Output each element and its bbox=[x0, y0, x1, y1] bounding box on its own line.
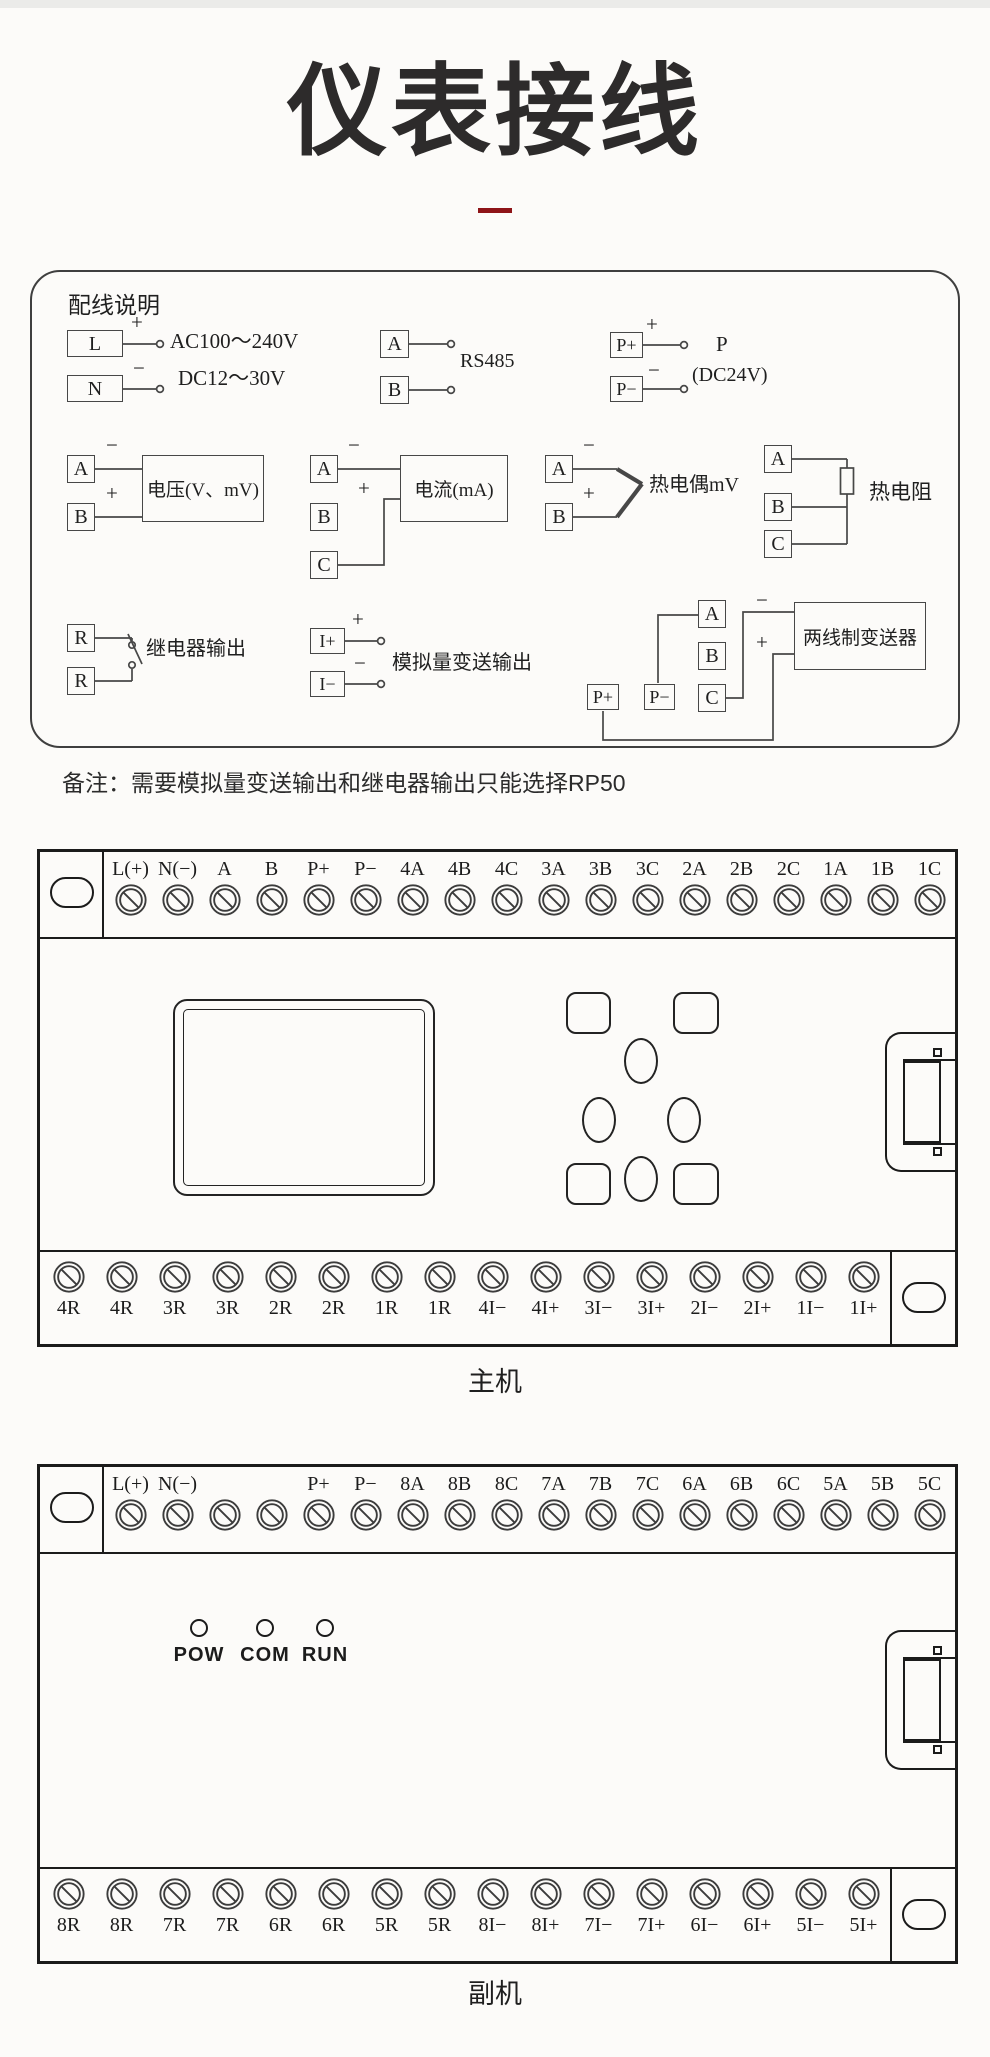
terminal-label: 7I+ bbox=[638, 1913, 666, 1937]
terminal: N(−) bbox=[154, 1472, 201, 1552]
terminal: 2A bbox=[671, 857, 718, 937]
terminal-label: 7I− bbox=[585, 1913, 613, 1937]
terminal-label: 2I+ bbox=[744, 1296, 772, 1320]
terminal-screw-icon bbox=[370, 1877, 404, 1911]
connector-slot bbox=[903, 1659, 941, 1741]
terminal: 6C bbox=[765, 1472, 812, 1552]
tx-plus-sign: + bbox=[756, 630, 768, 655]
terminal-screw-icon bbox=[913, 1498, 947, 1532]
terminal-screw-icon bbox=[211, 1877, 245, 1911]
connector-tab bbox=[933, 1147, 942, 1156]
terminal-label: 3C bbox=[636, 857, 659, 881]
terminal-screw-icon bbox=[741, 1260, 775, 1294]
terminal: B bbox=[248, 857, 295, 937]
terminal-box-tx-P-minus: P− bbox=[644, 684, 675, 710]
terminal-box-rtd-C: C bbox=[764, 530, 792, 558]
terminal-label: 6C bbox=[777, 1472, 800, 1496]
terminal-label: 7B bbox=[589, 1472, 612, 1496]
terminal-screw-icon bbox=[255, 883, 289, 917]
terminal-label: 5R bbox=[428, 1913, 451, 1937]
terminal-label: 8C bbox=[495, 1472, 518, 1496]
terminal: 2C bbox=[765, 857, 812, 937]
mount-hole bbox=[902, 1899, 946, 1930]
terminal-label: 5R bbox=[375, 1913, 398, 1937]
terminal: P+ bbox=[295, 1472, 342, 1552]
current-input-box: 电流(mA) bbox=[400, 455, 508, 522]
terminal-label: B bbox=[265, 857, 278, 881]
led-indicator-icon bbox=[256, 1619, 274, 1637]
terminal: N(−) bbox=[154, 857, 201, 937]
wiring-description-box: 配线说明 L N + − AC100～240V DC12～30V A B RS4… bbox=[30, 270, 960, 748]
terminal: 7I+ bbox=[625, 1877, 678, 1937]
terminal-label: 4R bbox=[57, 1296, 80, 1320]
keypad-up-button[interactable] bbox=[624, 1038, 658, 1084]
two-wire-transmitter-box: 两线制变送器 bbox=[794, 602, 926, 670]
terminal-screw-icon bbox=[741, 1877, 775, 1911]
terminal: 4I− bbox=[466, 1260, 519, 1320]
voltage-minus-sign: − bbox=[106, 433, 118, 458]
mount-hole bbox=[50, 1492, 94, 1523]
terminal-box-voltage-B: B bbox=[67, 503, 95, 531]
aout-plus-sign: + bbox=[352, 607, 364, 632]
terminal: 5A bbox=[812, 1472, 859, 1552]
terminal: 5R bbox=[360, 1877, 413, 1937]
relay-output-label: 继电器输出 bbox=[146, 632, 246, 661]
led-indicator-icon bbox=[316, 1619, 334, 1637]
terminal: 7C bbox=[624, 1472, 671, 1552]
terminal-screw-icon bbox=[396, 883, 430, 917]
terminal: 4I+ bbox=[519, 1260, 572, 1320]
terminal: 3I+ bbox=[625, 1260, 678, 1320]
terminal-box-tx-B: B bbox=[698, 642, 726, 670]
terminal-box-I-minus: I− bbox=[310, 671, 345, 697]
terminal-screw-icon bbox=[317, 1877, 351, 1911]
keypad-button-top-left[interactable] bbox=[566, 992, 611, 1034]
terminal-screw-icon bbox=[423, 1260, 457, 1294]
led-label: RUN bbox=[302, 1644, 348, 1667]
led-label: POW bbox=[174, 1644, 225, 1667]
terminal-label: 8I+ bbox=[532, 1913, 560, 1937]
terminal-label: 4I− bbox=[479, 1296, 507, 1320]
keypad-button-top-right[interactable] bbox=[673, 992, 719, 1034]
main-bottom-terminal-strip: 4R 4R 3R bbox=[40, 1250, 955, 1344]
terminal-screw-icon bbox=[537, 883, 571, 917]
main-top-terminals: L(+) N(−) A bbox=[107, 857, 953, 937]
terminal-box-rs485-A: A bbox=[380, 330, 409, 358]
terminal: 5I+ bbox=[837, 1877, 890, 1937]
terminal: 1I+ bbox=[837, 1260, 890, 1320]
terminal-label: 8B bbox=[448, 1472, 471, 1496]
power-voltage-ac: AC100～240V bbox=[170, 325, 298, 355]
terminal: 7I− bbox=[572, 1877, 625, 1937]
terminal-screw-icon bbox=[529, 1877, 563, 1911]
terminal: A bbox=[201, 857, 248, 937]
terminal-label: 1A bbox=[823, 857, 847, 881]
terminal: 2R bbox=[254, 1260, 307, 1320]
side-connector bbox=[885, 1032, 955, 1172]
main-unit-caption: 主机 bbox=[0, 1360, 990, 1399]
terminal: 8R bbox=[42, 1877, 95, 1937]
terminal: 7R bbox=[201, 1877, 254, 1937]
terminal-screw-icon bbox=[725, 883, 759, 917]
connector-line bbox=[903, 1143, 955, 1145]
terminal-label: 7R bbox=[216, 1913, 239, 1937]
terminal: 1A bbox=[812, 857, 859, 937]
terminal-label: 3I+ bbox=[638, 1296, 666, 1320]
terminal-screw-icon bbox=[847, 1877, 881, 1911]
terminal-box-voltage-A: A bbox=[67, 455, 95, 483]
mount-hole-cell bbox=[40, 852, 104, 937]
terminal-label: 7R bbox=[163, 1913, 186, 1937]
terminal: 2R bbox=[307, 1260, 360, 1320]
terminal-label: 2R bbox=[269, 1296, 292, 1320]
terminal-label: 3I− bbox=[585, 1296, 613, 1320]
terminal-screw-icon bbox=[490, 1498, 524, 1532]
terminal: 6B bbox=[718, 1472, 765, 1552]
tc-minus-sign: − bbox=[583, 433, 595, 458]
mount-hole bbox=[902, 1282, 946, 1313]
mount-hole-cell bbox=[890, 1252, 955, 1344]
terminal bbox=[201, 1472, 248, 1552]
terminal-box-tc-B: B bbox=[545, 503, 573, 531]
terminal-screw-icon bbox=[635, 1260, 669, 1294]
terminal-label: 4A bbox=[400, 857, 424, 881]
aux-bottom-terminals: 8R 8R 7R bbox=[42, 1877, 890, 1937]
terminal-label: 3R bbox=[216, 1296, 239, 1320]
aux-unit-diagram: L(+) N(−) bbox=[37, 1464, 958, 1964]
pout-plus-sign: + bbox=[646, 312, 658, 337]
terminal-screw-icon bbox=[688, 1877, 722, 1911]
mount-hole bbox=[50, 877, 94, 908]
terminal-screw-icon bbox=[443, 883, 477, 917]
terminal-screw-icon bbox=[794, 1877, 828, 1911]
terminal-box-tx-P-plus: P+ bbox=[587, 684, 619, 710]
terminal-screw-icon bbox=[211, 1260, 245, 1294]
terminal-screw-icon bbox=[631, 1498, 665, 1532]
terminal: 8I+ bbox=[519, 1877, 572, 1937]
terminal: 3C bbox=[624, 857, 671, 937]
terminal-label: 7A bbox=[541, 1472, 565, 1496]
connector-tab bbox=[933, 1048, 942, 1057]
terminal-screw-icon bbox=[866, 883, 900, 917]
connector-line bbox=[903, 1741, 955, 1743]
current-minus-sign: − bbox=[348, 433, 360, 458]
terminal-screw-icon bbox=[847, 1260, 881, 1294]
terminal-screw-icon bbox=[370, 1260, 404, 1294]
terminal-label: 6B bbox=[730, 1472, 753, 1496]
status-led: RUN bbox=[293, 1619, 357, 1667]
terminal-label: L(+) bbox=[112, 1472, 149, 1496]
keypad-left-button[interactable] bbox=[582, 1097, 616, 1143]
terminal-label: 5I− bbox=[797, 1913, 825, 1937]
terminal: P− bbox=[342, 857, 389, 937]
voltage-input-box: 电压(V、mV) bbox=[142, 455, 264, 522]
terminal-label: 2R bbox=[322, 1296, 345, 1320]
terminal: 4C bbox=[483, 857, 530, 937]
terminal: 8I− bbox=[466, 1877, 519, 1937]
terminal-screw-icon bbox=[52, 1260, 86, 1294]
terminal-label: 5C bbox=[918, 1472, 941, 1496]
terminal-screw-icon bbox=[349, 883, 383, 917]
terminal-screw-icon bbox=[584, 1498, 618, 1532]
terminal-label: 5B bbox=[871, 1472, 894, 1496]
terminal: 6R bbox=[307, 1877, 360, 1937]
terminal-label: 1I+ bbox=[850, 1296, 878, 1320]
terminal-screw-icon bbox=[264, 1877, 298, 1911]
terminal-box-relay-R2: R bbox=[67, 667, 95, 695]
terminal: L(+) bbox=[107, 1472, 154, 1552]
terminal-box-rs485-B: B bbox=[380, 376, 409, 404]
terminal-label: 1B bbox=[871, 857, 894, 881]
terminal-box-P-minus: P− bbox=[610, 376, 643, 402]
aux-unit-caption: 副机 bbox=[0, 1972, 990, 2011]
terminal-screw-icon bbox=[772, 883, 806, 917]
keypad-right-button[interactable] bbox=[667, 1097, 701, 1143]
terminal-screw-icon bbox=[819, 1498, 853, 1532]
title-accent-dash bbox=[478, 208, 512, 213]
side-connector bbox=[885, 1630, 955, 1770]
terminal-screw-icon bbox=[819, 883, 853, 917]
terminal: 8C bbox=[483, 1472, 530, 1552]
terminal-screw-icon bbox=[584, 883, 618, 917]
terminal-screw-icon bbox=[635, 1877, 669, 1911]
terminal-label: 1C bbox=[918, 857, 941, 881]
keypad-button-bottom-right[interactable] bbox=[673, 1163, 719, 1205]
status-led: COM bbox=[233, 1619, 297, 1667]
terminal-label: P+ bbox=[307, 1472, 329, 1496]
terminal-screw-icon bbox=[158, 1877, 192, 1911]
terminal: 2I− bbox=[678, 1260, 731, 1320]
terminal: 5C bbox=[906, 1472, 953, 1552]
terminal: 8R bbox=[95, 1877, 148, 1937]
connector-tab bbox=[933, 1745, 942, 1754]
page-title: 仪表接线 bbox=[0, 30, 990, 175]
terminal-label: 2I− bbox=[691, 1296, 719, 1320]
terminal-screw-icon bbox=[490, 883, 524, 917]
main-unit-diagram: L(+) N(−) A bbox=[37, 849, 958, 1347]
tc-plus-sign: + bbox=[583, 481, 595, 506]
thermocouple-label: 热电偶mV bbox=[649, 468, 739, 497]
terminal-screw-icon bbox=[161, 1498, 195, 1532]
terminal: 6I− bbox=[678, 1877, 731, 1937]
terminal-label: P− bbox=[354, 857, 376, 881]
terminal-label: 8A bbox=[400, 1472, 424, 1496]
main-bottom-terminals: 4R 4R 3R bbox=[42, 1260, 890, 1320]
terminal-screw-icon bbox=[317, 1260, 351, 1294]
terminal: 4R bbox=[42, 1260, 95, 1320]
terminal-screw-icon bbox=[688, 1260, 722, 1294]
terminal-label: 7C bbox=[636, 1472, 659, 1496]
terminal-screw-icon bbox=[678, 883, 712, 917]
display-bezel bbox=[173, 999, 435, 1196]
display-screen bbox=[183, 1009, 425, 1186]
terminal-label: P− bbox=[354, 1472, 376, 1496]
terminal-label: 2A bbox=[682, 857, 706, 881]
terminal-label: A bbox=[217, 857, 231, 881]
terminal: 7B bbox=[577, 1472, 624, 1552]
status-led: POW bbox=[167, 1619, 231, 1667]
terminal-screw-icon bbox=[349, 1498, 383, 1532]
terminal-box-rtd-B: B bbox=[764, 493, 792, 521]
page: { "page": { "title": "仪表接线" }, "colors":… bbox=[0, 0, 990, 2057]
terminal-label: 8R bbox=[110, 1913, 133, 1937]
wiring-box-title: 配线说明 bbox=[68, 286, 160, 320]
terminal: 4R bbox=[95, 1260, 148, 1320]
terminal-screw-icon bbox=[114, 1498, 148, 1532]
terminal: 5B bbox=[859, 1472, 906, 1552]
terminal: 2I+ bbox=[731, 1260, 784, 1320]
terminal: 6R bbox=[254, 1877, 307, 1937]
main-unit-body bbox=[40, 939, 955, 1250]
aux-unit-body: POW COM RUN bbox=[40, 1554, 955, 1867]
terminal-box-relay-R1: R bbox=[67, 624, 95, 652]
aux-bottom-terminal-strip: 8R 8R 7R bbox=[40, 1867, 955, 1961]
terminal-box-rtd-A: A bbox=[764, 445, 792, 473]
terminal: 1R bbox=[413, 1260, 466, 1320]
terminal-label: 5A bbox=[823, 1472, 847, 1496]
terminal-box-N: N bbox=[67, 375, 123, 402]
terminal: 3R bbox=[148, 1260, 201, 1320]
connector-tab bbox=[933, 1646, 942, 1655]
terminal: L(+) bbox=[107, 857, 154, 937]
terminal-label: P+ bbox=[307, 857, 329, 881]
terminal-screw-icon bbox=[529, 1260, 563, 1294]
terminal-label: 4I+ bbox=[532, 1296, 560, 1320]
terminal: 3R bbox=[201, 1260, 254, 1320]
terminal-box-current-B: B bbox=[310, 503, 338, 531]
terminal-screw-icon bbox=[678, 1498, 712, 1532]
terminal: 1B bbox=[859, 857, 906, 937]
aux-top-terminals: L(+) N(−) bbox=[107, 1472, 953, 1552]
terminal-label: L(+) bbox=[112, 857, 149, 881]
terminal-box-tx-A: A bbox=[698, 600, 726, 628]
analog-output-label: 模拟量变送输出 bbox=[392, 646, 532, 675]
terminal-screw-icon bbox=[208, 1498, 242, 1532]
terminal-label: 6A bbox=[682, 1472, 706, 1496]
terminal: 7R bbox=[148, 1877, 201, 1937]
terminal-label: 6I− bbox=[691, 1913, 719, 1937]
terminal: 1C bbox=[906, 857, 953, 937]
tx-minus-sign: − bbox=[756, 588, 768, 613]
terminal: 7A bbox=[530, 1472, 577, 1552]
main-top-terminal-strip: L(+) N(−) A bbox=[40, 852, 955, 939]
keypad-down-button[interactable] bbox=[624, 1156, 658, 1202]
terminal: 1I− bbox=[784, 1260, 837, 1320]
terminal-screw-icon bbox=[208, 883, 242, 917]
terminal-screw-icon bbox=[302, 883, 336, 917]
pout-minus-sign: − bbox=[648, 358, 660, 383]
rs485-label: RS485 bbox=[460, 350, 514, 373]
terminal-screw-icon bbox=[772, 1498, 806, 1532]
terminal-screw-icon bbox=[537, 1498, 571, 1532]
terminal: P− bbox=[342, 1472, 389, 1552]
terminal-label: N(−) bbox=[158, 1472, 197, 1496]
terminal-box-I-plus: I+ bbox=[310, 628, 345, 654]
terminal-label: 2C bbox=[777, 857, 800, 881]
terminal: 6I+ bbox=[731, 1877, 784, 1937]
terminal-screw-icon bbox=[52, 1877, 86, 1911]
terminal-screw-icon bbox=[443, 1498, 477, 1532]
aux-top-terminal-strip: L(+) N(−) bbox=[40, 1467, 955, 1554]
note-text: 备注：需要模拟量变送输出和继电器输出只能选择RP50 bbox=[62, 764, 626, 798]
terminal-label: 3B bbox=[589, 857, 612, 881]
terminal-screw-icon bbox=[264, 1260, 298, 1294]
terminal-label: 6R bbox=[322, 1913, 345, 1937]
terminal-screw-icon bbox=[725, 1498, 759, 1532]
terminal-screw-icon bbox=[423, 1877, 457, 1911]
terminal-screw-icon bbox=[866, 1498, 900, 1532]
terminal-label: 1R bbox=[375, 1296, 398, 1320]
terminal-box-L: L bbox=[67, 330, 123, 357]
led-indicator-icon bbox=[190, 1619, 208, 1637]
voltage-plus-sign: + bbox=[106, 481, 118, 506]
terminal-box-current-A: A bbox=[310, 455, 338, 483]
terminal: 8A bbox=[389, 1472, 436, 1552]
terminal-label: 2B bbox=[730, 857, 753, 881]
terminal-label: 4C bbox=[495, 857, 518, 881]
terminal-label: 4R bbox=[110, 1296, 133, 1320]
terminal-screw-icon bbox=[302, 1498, 336, 1532]
connector-slot bbox=[903, 1061, 941, 1143]
terminal-screw-icon bbox=[476, 1260, 510, 1294]
terminal-label: 5I+ bbox=[850, 1913, 878, 1937]
power-minus-sign: − bbox=[133, 356, 145, 381]
terminal: 4B bbox=[436, 857, 483, 937]
terminal-screw-icon bbox=[158, 1260, 192, 1294]
terminal-label: N(−) bbox=[158, 857, 197, 881]
terminal-screw-icon bbox=[794, 1260, 828, 1294]
terminal-label: 8R bbox=[57, 1913, 80, 1937]
terminal-screw-icon bbox=[396, 1498, 430, 1532]
terminal-screw-icon bbox=[582, 1877, 616, 1911]
terminal-label: 3R bbox=[163, 1296, 186, 1320]
current-plus-sign: + bbox=[358, 476, 370, 501]
top-gray-bar bbox=[0, 0, 990, 8]
mount-hole-cell bbox=[890, 1869, 955, 1961]
terminal-screw-icon bbox=[105, 1260, 139, 1294]
terminal-screw-icon bbox=[582, 1260, 616, 1294]
terminal-box-tc-A: A bbox=[545, 455, 573, 483]
power-plus-sign: + bbox=[131, 310, 143, 335]
terminal-box-current-C: C bbox=[310, 551, 338, 579]
led-label: COM bbox=[240, 1644, 290, 1667]
rtd-label: 热电阻 bbox=[869, 476, 932, 506]
aout-minus-sign: − bbox=[354, 651, 366, 676]
terminal-label: 1I− bbox=[797, 1296, 825, 1320]
terminal: 1R bbox=[360, 1260, 413, 1320]
terminal-screw-icon bbox=[161, 883, 195, 917]
terminal: P+ bbox=[295, 857, 342, 937]
terminal: 3B bbox=[577, 857, 624, 937]
pout-name-label: P bbox=[716, 332, 728, 357]
terminal: 5I− bbox=[784, 1877, 837, 1937]
terminal-screw-icon bbox=[631, 883, 665, 917]
terminal-label: 4B bbox=[448, 857, 471, 881]
terminal-box-tx-C: C bbox=[698, 684, 726, 712]
terminal: 4A bbox=[389, 857, 436, 937]
terminal: 3I− bbox=[572, 1260, 625, 1320]
terminal-label: 1R bbox=[428, 1296, 451, 1320]
power-voltage-dc: DC12～30V bbox=[178, 362, 285, 392]
terminal: 8B bbox=[436, 1472, 483, 1552]
terminal-screw-icon bbox=[105, 1877, 139, 1911]
terminal-screw-icon bbox=[255, 1498, 289, 1532]
keypad-button-bottom-left[interactable] bbox=[566, 1163, 611, 1205]
terminal-screw-icon bbox=[476, 1877, 510, 1911]
terminal-screw-icon bbox=[913, 883, 947, 917]
terminal: 5R bbox=[413, 1877, 466, 1937]
terminal: 6A bbox=[671, 1472, 718, 1552]
